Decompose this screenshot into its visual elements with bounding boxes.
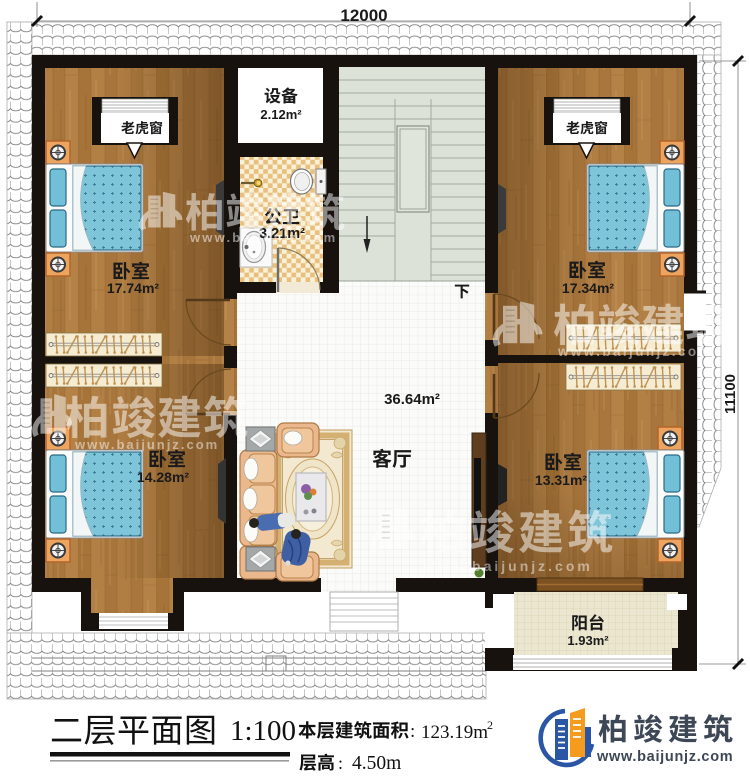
svg-text:123.19m: 123.19m: [421, 722, 488, 743]
svg-text:4.50m: 4.50m: [352, 753, 401, 774]
svg-text:11100: 11100: [722, 374, 739, 414]
svg-text:13.31m²: 13.31m²: [535, 472, 587, 488]
svg-text:14.28m²: 14.28m²: [137, 469, 189, 485]
svg-text::: :: [338, 753, 343, 773]
svg-text:12000: 12000: [340, 6, 387, 25]
svg-text:www.baijunjz.com: www.baijunjz.com: [557, 344, 713, 359]
svg-text:2.12m²: 2.12m²: [260, 107, 302, 122]
svg-text:17.74m²: 17.74m²: [107, 280, 159, 296]
svg-text:17.34m²: 17.34m²: [562, 280, 614, 296]
svg-text:1:100: 1:100: [230, 715, 296, 747]
svg-text:1.93m²: 1.93m²: [567, 633, 609, 648]
svg-text:www.baijunjz.com: www.baijunjz.com: [423, 558, 593, 574]
svg-text:2: 2: [487, 718, 493, 732]
svg-text:www.baijunjz.com: www.baijunjz.com: [189, 230, 337, 245]
svg-text::: :: [410, 721, 415, 742]
svg-text:36.64m²: 36.64m²: [384, 391, 440, 408]
svg-text:www.baijunjz.com: www.baijunjz.com: [596, 749, 733, 765]
svg-text:www.baijunjz.com: www.baijunjz.com: [74, 437, 219, 452]
